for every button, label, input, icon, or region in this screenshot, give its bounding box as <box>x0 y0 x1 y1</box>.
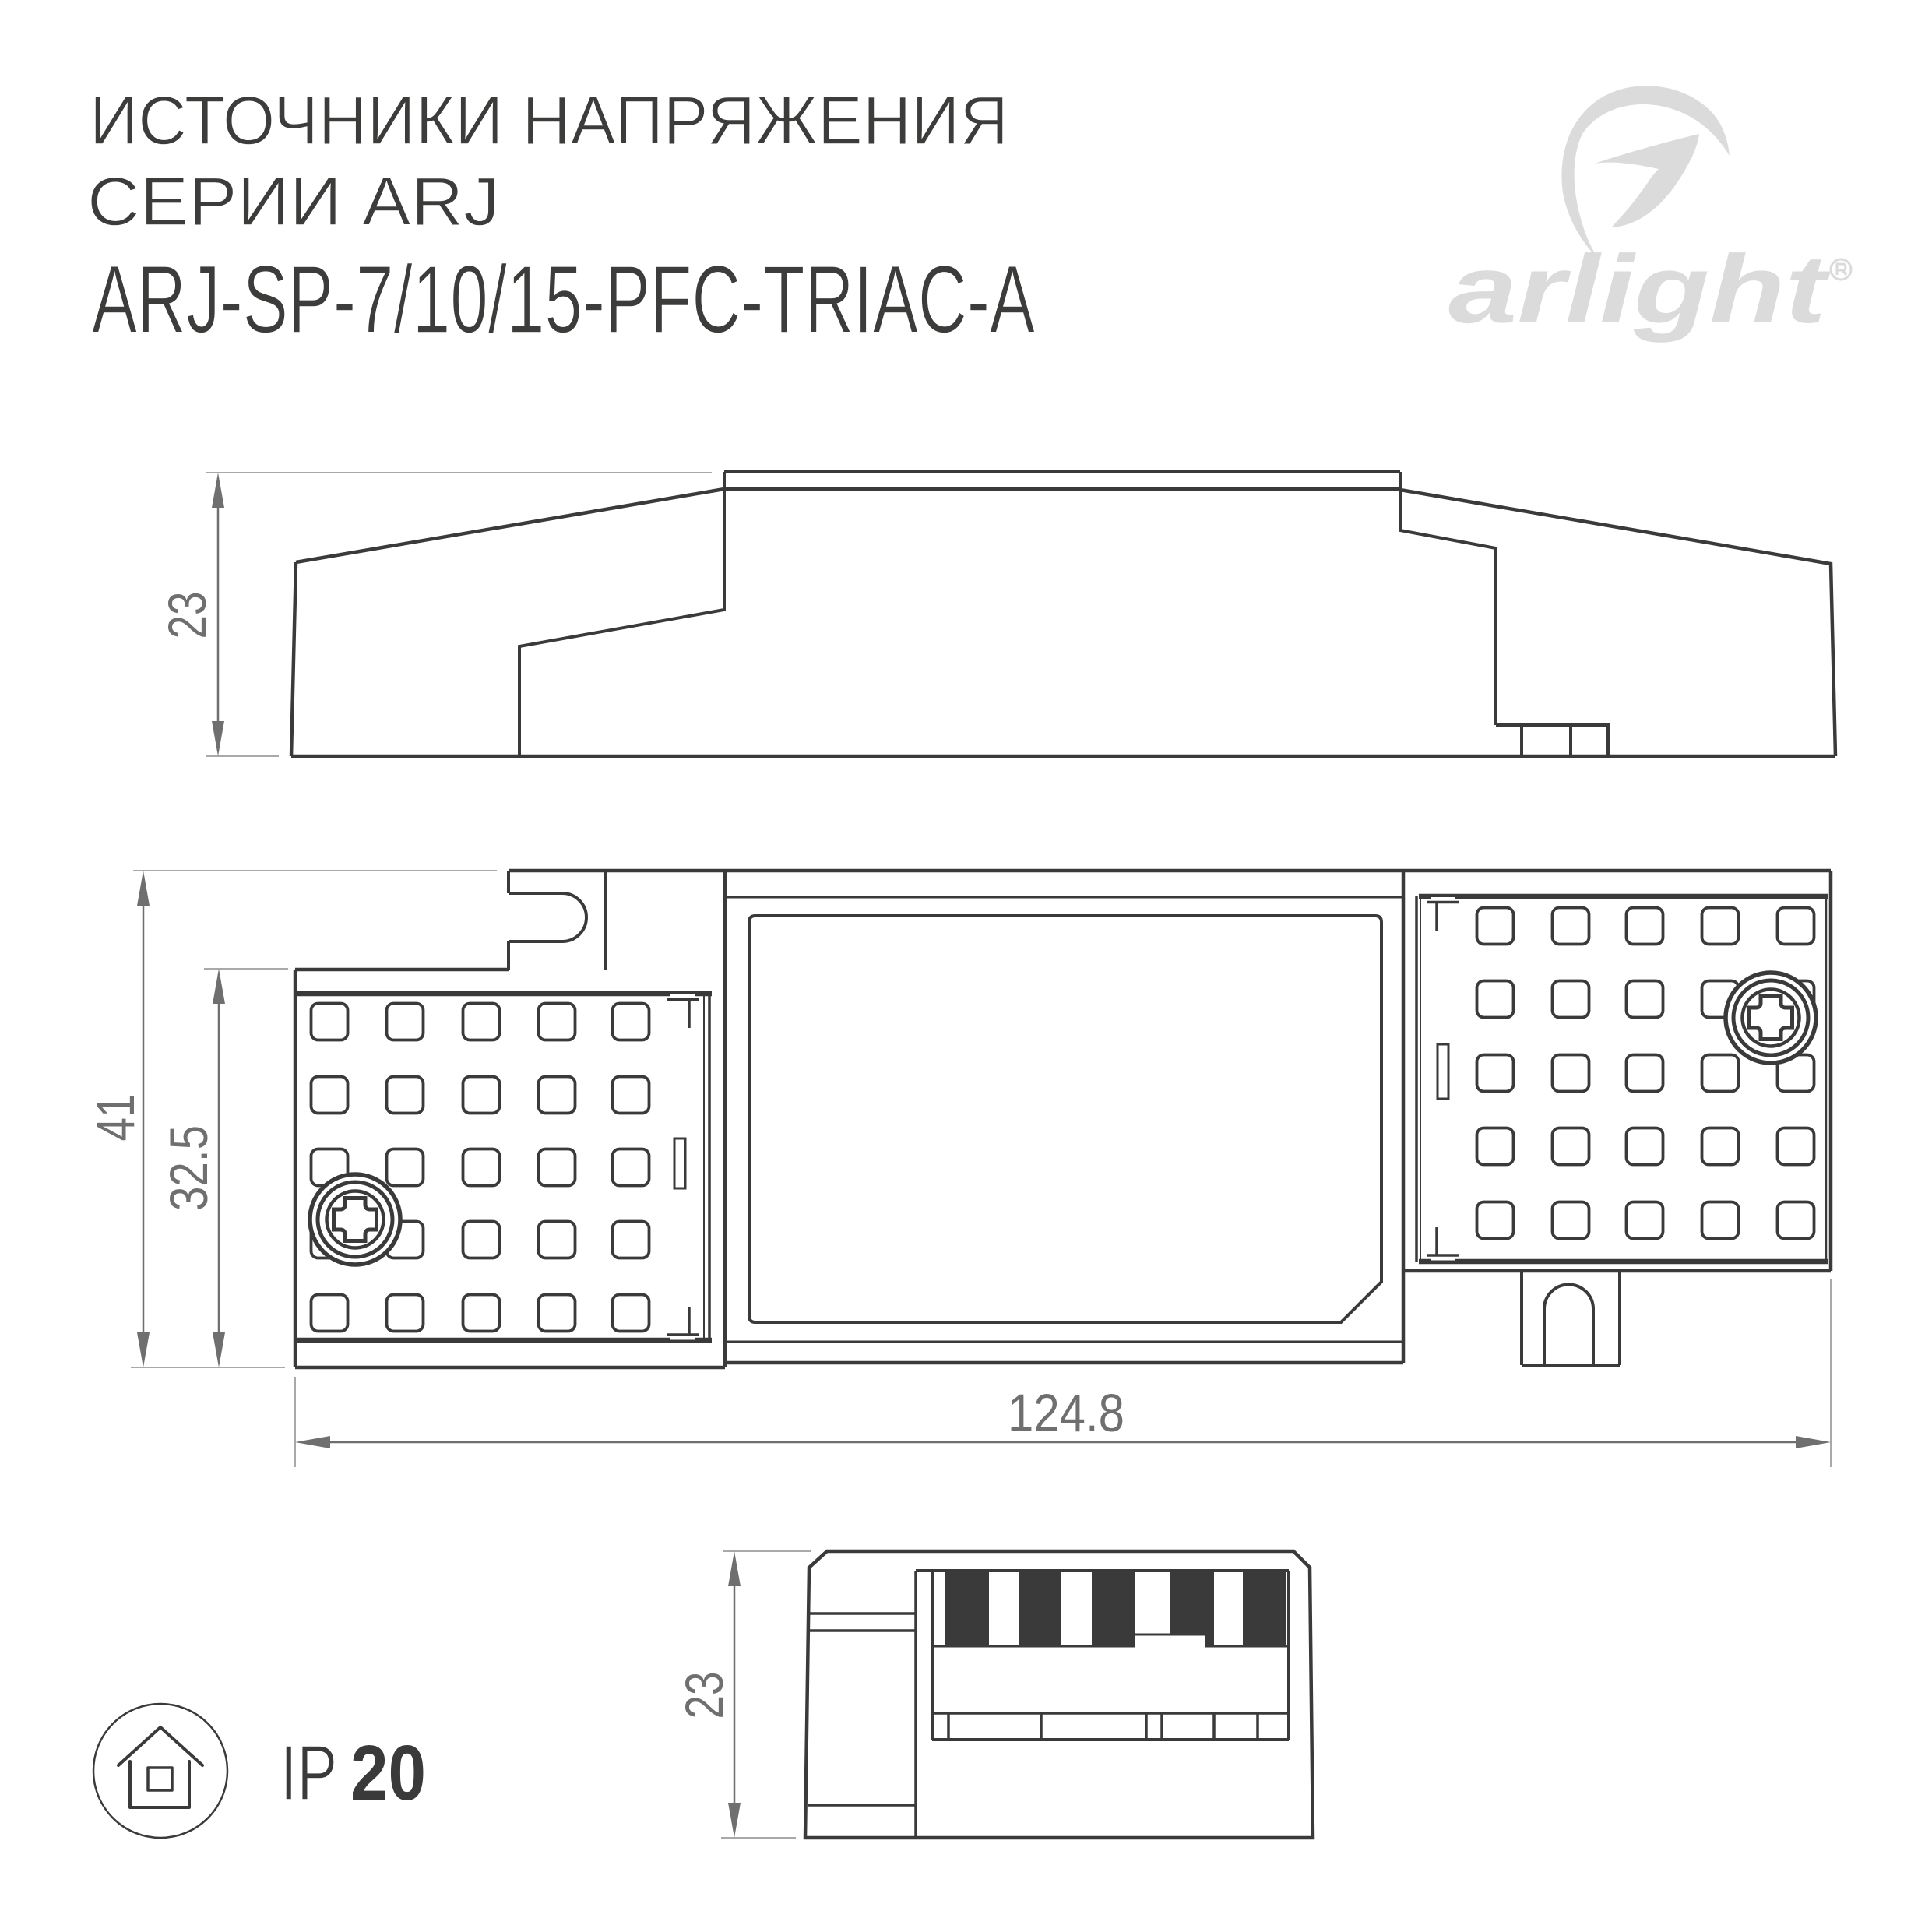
svg-text:124.8: 124.8 <box>1008 1383 1124 1443</box>
svg-text:СЕРИИ ARJ: СЕРИИ ARJ <box>87 163 500 240</box>
svg-text:32.5: 32.5 <box>159 1125 219 1211</box>
svg-text:arlight: arlight <box>1448 236 1831 343</box>
svg-text:ИСТОЧНИКИ НАПРЯЖЕНИЯ: ИСТОЧНИКИ НАПРЯЖЕНИЯ <box>90 82 1008 159</box>
svg-text:23: 23 <box>674 1672 734 1719</box>
svg-text:23: 23 <box>157 592 217 639</box>
svg-text:41: 41 <box>86 1094 146 1142</box>
svg-text:IP: IP <box>280 1730 337 1817</box>
svg-text:ARJ-SP-7/10/15-PFC-TRIAC-A: ARJ-SP-7/10/15-PFC-TRIAC-A <box>92 247 1035 354</box>
svg-text:20: 20 <box>350 1730 426 1817</box>
